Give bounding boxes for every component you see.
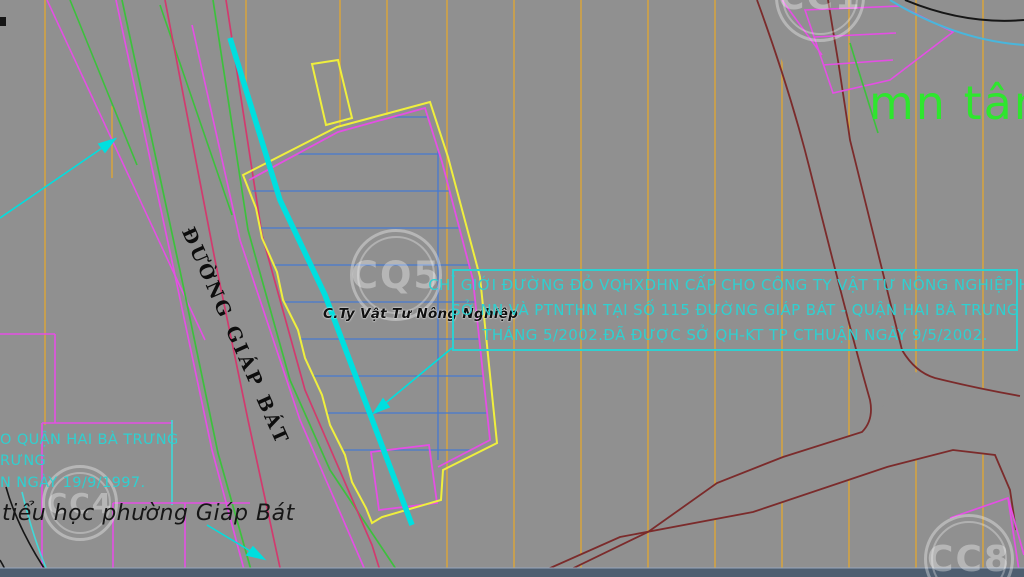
left-note-line-1: O QUẬN HAI BÀ TRƯNG — [0, 432, 179, 448]
note-line-1: CHỈ GIỚI ĐƯỜNG ĐỎ VQHXDHN CẤP CHO CÔNG T… — [428, 273, 1024, 298]
school-label: tiểu học phường Giáp Bát — [2, 501, 295, 526]
mn-tan-label: mn tân — [869, 76, 1024, 130]
red-line-note-box: CHỈ GIỚI ĐƯỜNG ĐỎ VQHXDHN CẤP CHO CÔNG T… — [452, 269, 1018, 351]
stamp-text: CC1 — [778, 0, 862, 18]
cad-map-canvas[interactable]: CC1 CQ5 CC4 CC8 ĐƯỜNG GIÁP BÁT C.Ty Vật … — [0, 0, 1024, 577]
left-note-line-3: N NGÀY 19/9/1997. — [0, 475, 146, 491]
left-note-line-2: RƯNG — [0, 453, 46, 469]
bottom-bar — [0, 568, 1024, 577]
note-line-3: THÁNG 5/2002.ĐÃ ĐƯỢC SỞ QH-KT TP CTHUẬN … — [482, 323, 988, 348]
edge-mark — [0, 17, 6, 26]
stamp-text: CC8 — [927, 539, 1011, 577]
note-line-2: SỞ NN VÀ PTNTHN TẠI SỐ 115 ĐƯỜNG GIÁP BÁ… — [451, 298, 1019, 323]
